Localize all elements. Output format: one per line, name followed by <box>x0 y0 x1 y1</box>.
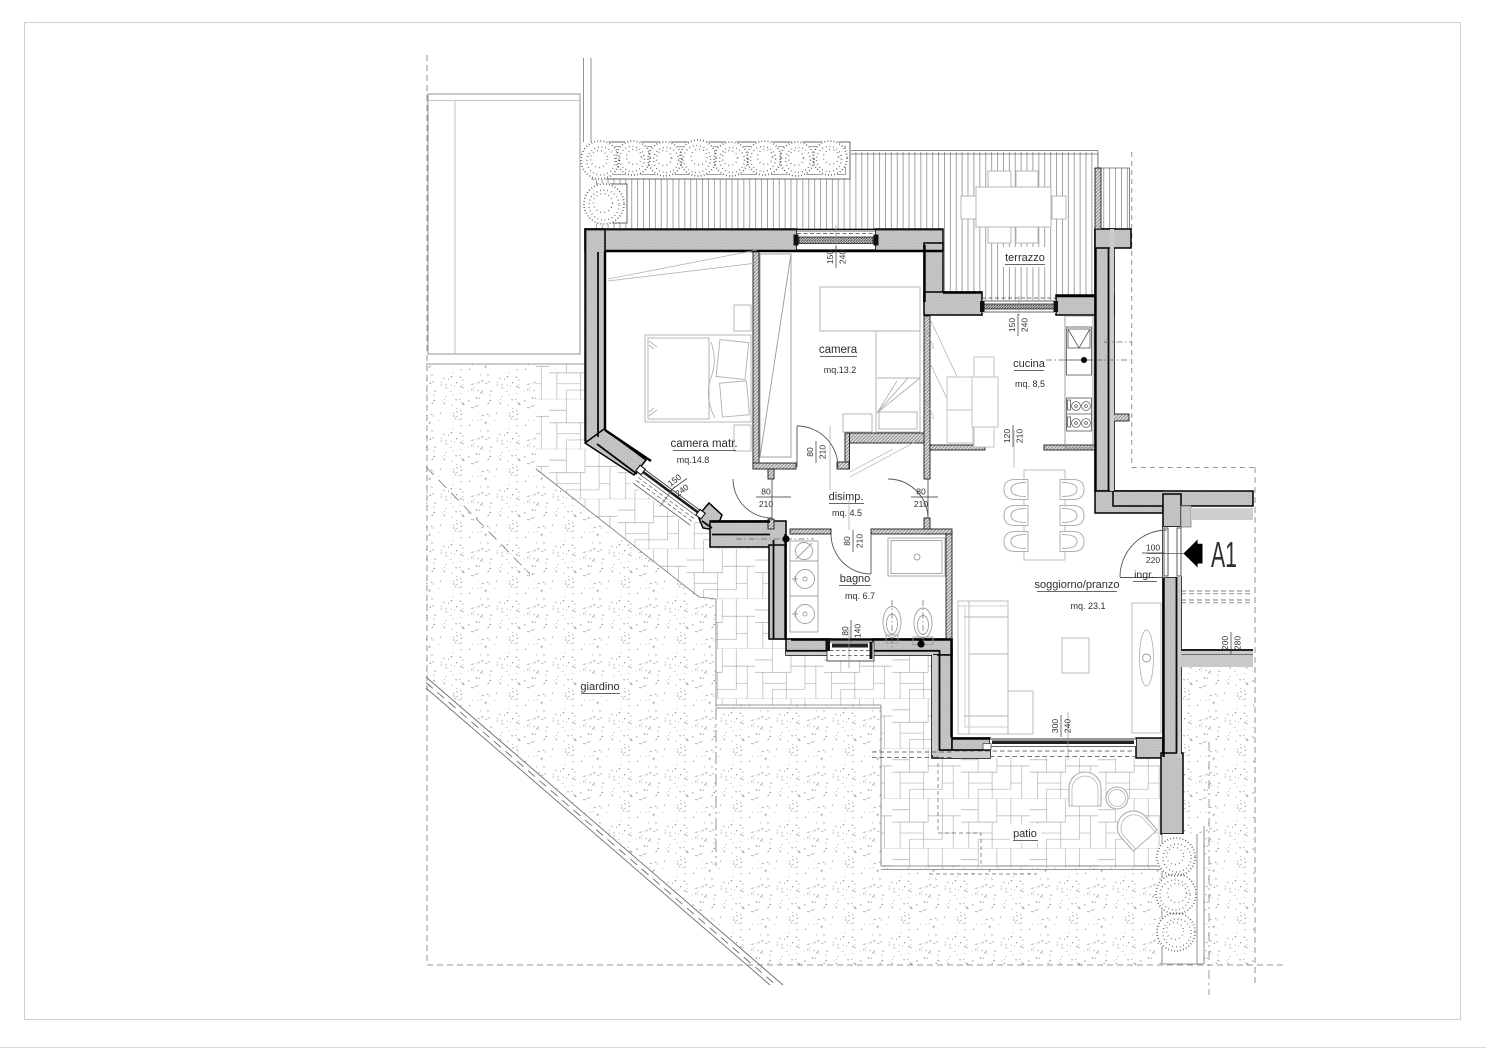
svg-text:ingr.: ingr. <box>1134 569 1154 581</box>
svg-text:120: 120 <box>1002 429 1012 443</box>
svg-text:300: 300 <box>1050 719 1060 733</box>
svg-text:mq. 8,5: mq. 8,5 <box>1015 379 1045 389</box>
svg-text:220: 220 <box>1146 555 1160 565</box>
svg-text:80: 80 <box>842 536 852 546</box>
svg-text:mq.13.2: mq.13.2 <box>824 365 857 375</box>
svg-text:80: 80 <box>761 487 771 497</box>
svg-text:80: 80 <box>840 626 850 636</box>
svg-text:210: 210 <box>855 534 865 548</box>
svg-text:camera matr.: camera matr. <box>670 438 737 450</box>
svg-text:240: 240 <box>1020 318 1030 332</box>
svg-text:80: 80 <box>805 447 815 457</box>
svg-text:280: 280 <box>1233 636 1243 650</box>
svg-text:210: 210 <box>759 499 773 509</box>
svg-text:patio: patio <box>1013 828 1037 840</box>
svg-text:210: 210 <box>1015 429 1025 443</box>
svg-text:bagno: bagno <box>840 573 871 585</box>
svg-text:giardino: giardino <box>580 681 619 693</box>
svg-text:mq. 23.1: mq. 23.1 <box>1070 601 1105 611</box>
svg-text:200: 200 <box>1220 636 1230 650</box>
svg-text:210: 210 <box>914 499 928 509</box>
svg-text:240: 240 <box>1063 719 1073 733</box>
svg-text:disimp.: disimp. <box>829 491 864 503</box>
svg-text:100: 100 <box>1146 543 1160 553</box>
svg-text:150: 150 <box>1007 318 1017 332</box>
svg-text:mq. 4.5: mq. 4.5 <box>832 508 862 518</box>
svg-text:terrazzo: terrazzo <box>1005 252 1045 264</box>
svg-text:80: 80 <box>916 487 926 497</box>
svg-text:soggiorno/pranzo: soggiorno/pranzo <box>1034 579 1119 591</box>
svg-text:cucina: cucina <box>1013 358 1046 370</box>
svg-text:140: 140 <box>853 624 863 638</box>
svg-text:mq.14.8: mq.14.8 <box>677 455 710 465</box>
svg-text:A1: A1 <box>1211 534 1237 575</box>
svg-text:camera: camera <box>819 344 858 356</box>
svg-text:150: 150 <box>825 250 835 264</box>
svg-text:240: 240 <box>838 250 848 264</box>
svg-text:mq. 6.7: mq. 6.7 <box>845 591 875 601</box>
svg-text:210: 210 <box>818 445 828 459</box>
